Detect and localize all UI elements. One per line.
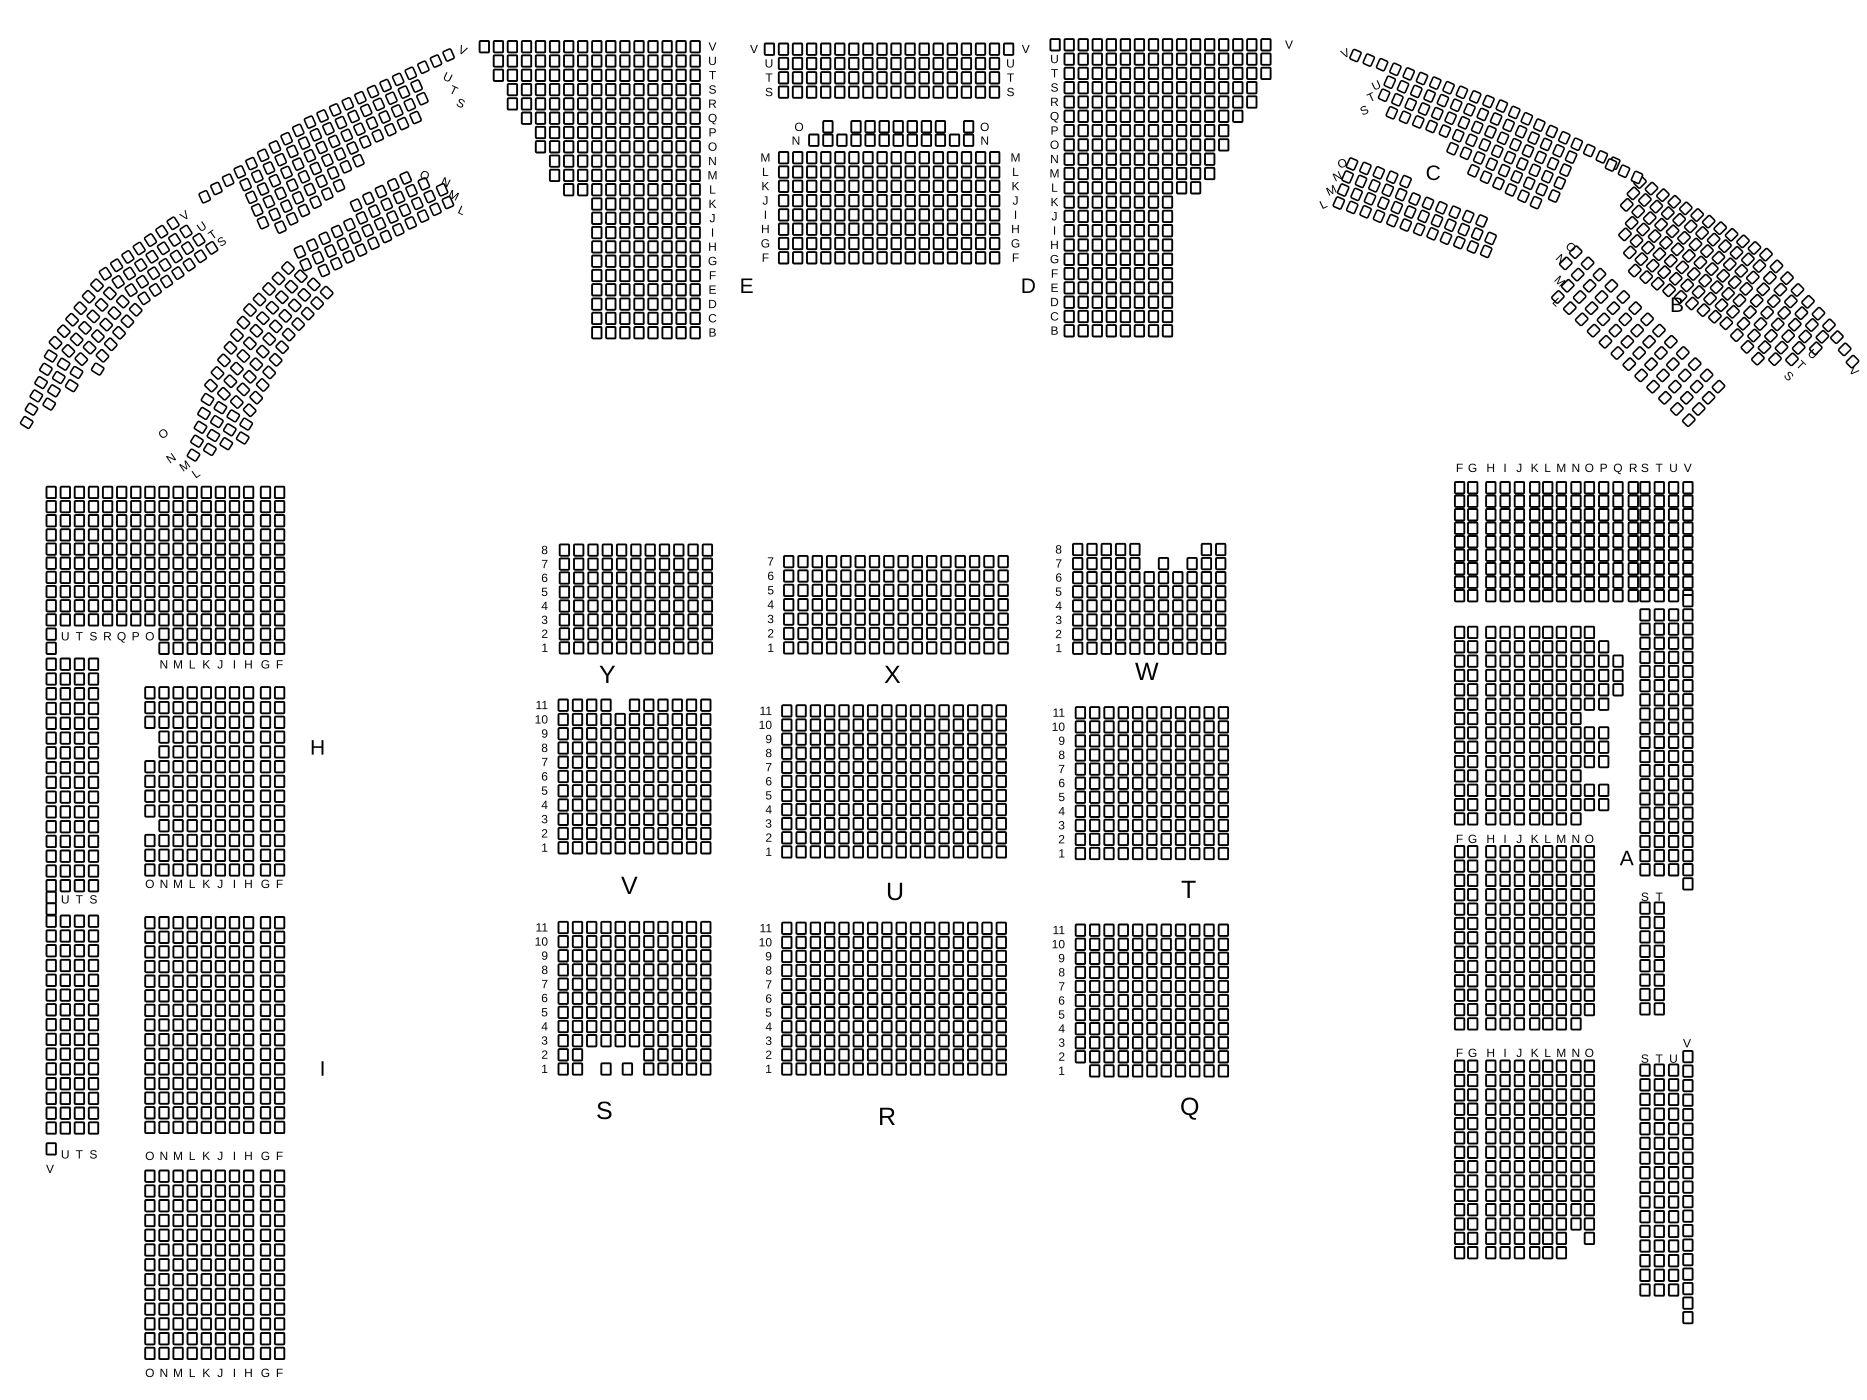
svg-text:O: O [1050,138,1059,152]
svg-text:U: U [708,54,717,68]
svg-text:P: P [1050,124,1058,138]
svg-text:M: M [1556,461,1566,475]
svg-text:T: T [76,1147,84,1161]
svg-text:5: 5 [767,583,774,597]
svg-text:11: 11 [760,704,773,718]
svg-text:9: 9 [541,727,548,741]
svg-text:5: 5 [541,1005,548,1019]
svg-text:4: 4 [765,1020,772,1034]
svg-text:7: 7 [1058,979,1065,993]
svg-text:O: O [145,877,154,891]
svg-text:8: 8 [1055,542,1062,556]
svg-text:3: 3 [1058,1036,1065,1050]
svg-text:U: U [1006,56,1015,70]
svg-text:3: 3 [1058,818,1065,832]
svg-text:D: D [708,297,717,311]
svg-text:1: 1 [541,641,548,655]
svg-text:I: I [233,1149,236,1163]
svg-text:O: O [794,120,803,134]
svg-text:10: 10 [1052,720,1066,734]
svg-text:V: V [456,42,469,58]
svg-text:I: I [1053,224,1056,238]
svg-text:Q: Q [1180,1093,1199,1121]
svg-text:C: C [1426,162,1441,185]
svg-text:L: L [1544,1046,1551,1060]
svg-text:V: V [1684,461,1692,475]
svg-text:L: L [189,657,196,671]
svg-text:1: 1 [765,1062,772,1076]
svg-text:I: I [233,1366,236,1380]
svg-text:L: L [1544,461,1551,475]
svg-text:4: 4 [541,798,548,812]
svg-text:L: L [189,466,203,481]
svg-text:P: P [132,629,140,643]
svg-text:V: V [1683,1036,1691,1050]
svg-text:I: I [320,1058,326,1081]
svg-text:10: 10 [759,718,773,732]
svg-text:I: I [1503,1046,1506,1060]
svg-text:J: J [762,194,768,208]
svg-text:K: K [1531,1046,1539,1060]
svg-text:M: M [707,168,717,182]
svg-text:K: K [761,179,769,193]
svg-text:T: T [1007,71,1015,85]
svg-text:1: 1 [767,641,774,655]
svg-text:R: R [1629,461,1638,475]
svg-text:T: T [1051,66,1059,80]
svg-text:I: I [233,877,236,891]
svg-text:M: M [1010,151,1020,165]
svg-text:R: R [878,1103,896,1131]
svg-text:3: 3 [765,1034,772,1048]
svg-text:3: 3 [541,613,548,627]
svg-text:1: 1 [1058,1064,1065,1078]
svg-text:N: N [1572,461,1581,475]
svg-text:I: I [1503,461,1506,475]
svg-text:G: G [1468,461,1477,475]
svg-text:P: P [708,125,716,139]
svg-text:7: 7 [1055,557,1062,571]
svg-text:4: 4 [541,1019,548,1033]
svg-text:N: N [160,877,169,891]
svg-text:E: E [708,283,716,297]
svg-text:S: S [89,892,97,906]
svg-text:F: F [1456,461,1463,475]
svg-text:T: T [1656,461,1664,475]
svg-text:B: B [1050,324,1058,338]
svg-text:U: U [61,629,70,643]
svg-text:F: F [1012,251,1019,265]
svg-text:J: J [1516,1046,1522,1060]
svg-text:8: 8 [1058,748,1065,762]
svg-text:F: F [1456,1046,1463,1060]
svg-text:10: 10 [535,935,549,949]
svg-text:5: 5 [541,784,548,798]
svg-text:O: O [980,120,989,134]
svg-text:M: M [1556,832,1566,846]
svg-text:U: U [765,56,774,70]
svg-text:11: 11 [1053,706,1066,720]
svg-text:6: 6 [1055,571,1062,585]
svg-text:2: 2 [1058,1050,1065,1064]
svg-text:F: F [276,1149,283,1163]
svg-text:S: S [596,1097,613,1125]
svg-text:3: 3 [541,812,548,826]
svg-text:5: 5 [1058,1008,1065,1022]
svg-text:M: M [173,1366,183,1380]
svg-text:1: 1 [541,841,548,855]
svg-text:F: F [762,251,769,265]
svg-text:G: G [261,877,270,891]
svg-text:I: I [1503,832,1506,846]
svg-text:I: I [233,657,236,671]
svg-text:R: R [103,629,112,643]
svg-text:2: 2 [541,627,548,641]
svg-text:Q: Q [1613,461,1622,475]
svg-text:V: V [621,872,638,900]
svg-text:L: L [1317,196,1329,212]
svg-text:M: M [1324,182,1339,199]
svg-text:4: 4 [1055,599,1062,613]
svg-text:G: G [1011,236,1020,250]
svg-text:S: S [1781,368,1797,384]
svg-text:5: 5 [1058,790,1065,804]
svg-text:J: J [217,657,223,671]
svg-text:V: V [177,208,192,224]
svg-text:I: I [1014,208,1017,222]
svg-text:8: 8 [541,963,548,977]
svg-text:N: N [708,154,717,168]
svg-text:D: D [1021,275,1036,298]
svg-text:U: U [61,892,70,906]
svg-text:Y: Y [599,661,616,689]
svg-text:8: 8 [765,746,772,760]
svg-text:4: 4 [1058,1022,1065,1036]
svg-text:1: 1 [765,845,772,859]
svg-text:3: 3 [541,1034,548,1048]
svg-text:8: 8 [1058,965,1065,979]
svg-text:6: 6 [541,991,548,1005]
svg-text:2: 2 [1058,832,1065,846]
svg-text:H: H [244,657,253,671]
svg-text:N: N [980,134,989,148]
svg-text:P: P [1600,461,1608,475]
svg-text:F: F [709,268,716,282]
svg-text:M: M [173,1149,183,1163]
svg-text:O: O [145,1149,154,1163]
svg-text:5: 5 [1055,585,1062,599]
svg-text:J: J [1012,194,1018,208]
svg-text:U: U [1669,461,1678,475]
svg-text:B: B [708,326,716,340]
svg-text:V: V [1285,38,1293,52]
svg-text:6: 6 [1058,776,1065,790]
svg-text:R: R [1050,95,1059,109]
svg-text:K: K [1531,461,1539,475]
svg-text:G: G [1468,1046,1477,1060]
svg-text:T: T [765,71,773,85]
svg-text:H: H [1011,222,1020,236]
svg-text:L: L [1051,181,1058,195]
svg-text:F: F [1051,267,1058,281]
svg-text:10: 10 [759,935,773,949]
svg-text:4: 4 [767,598,774,612]
svg-text:J: J [1516,832,1522,846]
svg-text:V: V [46,1162,54,1176]
svg-text:Q: Q [1050,109,1059,123]
svg-text:J: J [217,1366,223,1380]
svg-text:11: 11 [536,698,549,712]
svg-text:S: S [1358,102,1371,118]
svg-text:J: J [217,1149,223,1163]
svg-text:G: G [761,236,770,250]
svg-text:H: H [761,222,770,236]
svg-text:5: 5 [541,585,548,599]
svg-text:8: 8 [765,963,772,977]
svg-text:S: S [1641,461,1649,475]
svg-text:T: T [76,892,84,906]
svg-text:J: J [709,211,715,225]
svg-text:C: C [708,311,717,325]
svg-text:9: 9 [765,949,772,963]
svg-text:K: K [202,1149,210,1163]
svg-text:I: I [764,208,767,222]
svg-text:X: X [884,661,901,689]
svg-text:2: 2 [541,1048,548,1062]
svg-text:S: S [89,1147,97,1161]
svg-text:7: 7 [541,755,548,769]
svg-text:M: M [1049,166,1059,180]
svg-text:O: O [1585,461,1594,475]
svg-text:N: N [160,1149,169,1163]
svg-text:7: 7 [765,978,772,992]
svg-text:K: K [1050,195,1058,209]
svg-text:N: N [160,657,169,671]
svg-text:S: S [454,95,467,111]
svg-text:8: 8 [541,741,548,755]
svg-text:6: 6 [1058,994,1065,1008]
svg-text:S: S [1050,81,1058,95]
svg-text:8: 8 [541,543,548,557]
svg-text:9: 9 [1058,951,1065,965]
svg-text:M: M [173,657,183,671]
svg-text:1: 1 [1058,846,1065,860]
svg-text:K: K [202,877,210,891]
svg-text:N: N [1572,832,1581,846]
svg-text:N: N [1050,152,1059,166]
svg-text:11: 11 [760,921,773,935]
svg-text:H: H [1486,832,1495,846]
svg-text:K: K [202,657,210,671]
svg-text:H: H [1486,1046,1495,1060]
svg-text:2: 2 [765,1048,772,1062]
svg-text:E: E [740,275,754,298]
svg-text:3: 3 [765,817,772,831]
svg-text:L: L [709,183,716,197]
svg-text:L: L [189,1366,196,1380]
svg-text:F: F [1456,832,1463,846]
svg-text:E: E [1050,281,1058,295]
svg-text:S: S [765,85,773,99]
svg-text:N: N [160,1366,169,1380]
svg-text:O: O [145,1366,154,1380]
svg-text:B: B [1670,294,1684,317]
svg-text:T: T [76,629,84,643]
svg-text:G: G [261,1149,270,1163]
svg-text:T: T [1181,876,1196,904]
svg-text:5: 5 [765,788,772,802]
svg-text:S: S [1006,85,1014,99]
svg-text:7: 7 [541,557,548,571]
svg-text:U: U [1805,346,1821,362]
svg-text:G: G [1050,252,1059,266]
svg-text:H: H [244,1366,253,1380]
svg-text:3: 3 [1055,613,1062,627]
svg-text:9: 9 [541,949,548,963]
svg-text:J: J [1051,209,1057,223]
svg-text:4: 4 [765,803,772,817]
svg-text:H: H [244,1149,253,1163]
svg-text:F: F [276,1366,283,1380]
svg-text:11: 11 [536,920,549,934]
svg-text:M: M [1556,1046,1566,1060]
svg-text:L: L [1012,165,1019,179]
svg-text:H: H [1486,461,1495,475]
svg-text:4: 4 [1058,804,1065,818]
svg-text:J: J [217,877,223,891]
svg-text:10: 10 [1052,937,1066,951]
svg-text:9: 9 [1058,734,1065,748]
svg-text:F: F [276,657,283,671]
svg-text:G: G [708,254,717,268]
svg-text:2: 2 [541,826,548,840]
svg-text:V: V [1022,42,1030,56]
svg-text:G: G [1468,832,1477,846]
svg-text:N: N [792,134,801,148]
svg-text:6: 6 [541,571,548,585]
svg-text:Q: Q [117,629,126,643]
svg-text:U: U [1050,52,1059,66]
svg-text:2: 2 [767,626,774,640]
svg-text:H: H [708,240,717,254]
svg-text:11: 11 [1053,923,1066,937]
svg-text:T: T [709,68,717,82]
svg-text:L: L [1544,832,1551,846]
svg-text:S: S [89,629,97,643]
svg-text:K: K [202,1366,210,1380]
svg-text:L: L [456,203,468,219]
svg-text:2: 2 [1055,627,1062,641]
svg-text:O: O [1585,832,1594,846]
svg-text:10: 10 [535,712,549,726]
svg-text:6: 6 [541,769,548,783]
svg-text:O: O [145,629,154,643]
svg-text:6: 6 [765,774,772,788]
svg-text:C: C [1050,309,1059,323]
svg-text:D: D [1050,295,1059,309]
svg-text:3: 3 [767,612,774,626]
svg-text:J: J [1516,461,1522,475]
svg-text:K: K [1011,179,1019,193]
svg-text:H: H [244,877,253,891]
svg-text:M: M [760,151,770,165]
svg-text:K: K [1531,832,1539,846]
svg-text:G: G [261,657,270,671]
svg-text:L: L [189,1149,196,1163]
svg-text:V: V [750,42,758,56]
svg-text:V: V [708,40,716,54]
svg-text:1: 1 [1055,641,1062,655]
svg-text:U: U [886,878,904,906]
svg-text:I: I [711,226,714,240]
svg-text:O: O [708,140,717,154]
svg-text:7: 7 [765,760,772,774]
svg-text:O: O [1585,1046,1594,1060]
svg-text:2: 2 [765,831,772,845]
svg-text:9: 9 [765,732,772,746]
svg-text:H: H [310,737,325,760]
svg-text:7: 7 [541,977,548,991]
svg-text:7: 7 [1058,762,1065,776]
svg-text:H: H [1050,238,1059,252]
svg-text:6: 6 [767,569,774,583]
svg-text:O: O [156,425,172,442]
svg-text:6: 6 [765,992,772,1006]
svg-text:A: A [1620,847,1634,870]
svg-text:7: 7 [767,555,774,569]
svg-text:K: K [708,197,716,211]
svg-text:S: S [708,83,716,97]
svg-text:W: W [1135,658,1159,686]
svg-text:N: N [1572,1046,1581,1060]
svg-text:1: 1 [541,1062,548,1076]
svg-text:M: M [173,877,183,891]
svg-text:Q: Q [708,111,717,125]
svg-text:R: R [708,97,717,111]
svg-text:4: 4 [541,599,548,613]
svg-text:G: G [261,1366,270,1380]
svg-text:L: L [189,877,196,891]
svg-text:L: L [762,165,769,179]
svg-text:U: U [61,1147,70,1161]
svg-text:5: 5 [765,1006,772,1020]
svg-text:F: F [276,877,283,891]
